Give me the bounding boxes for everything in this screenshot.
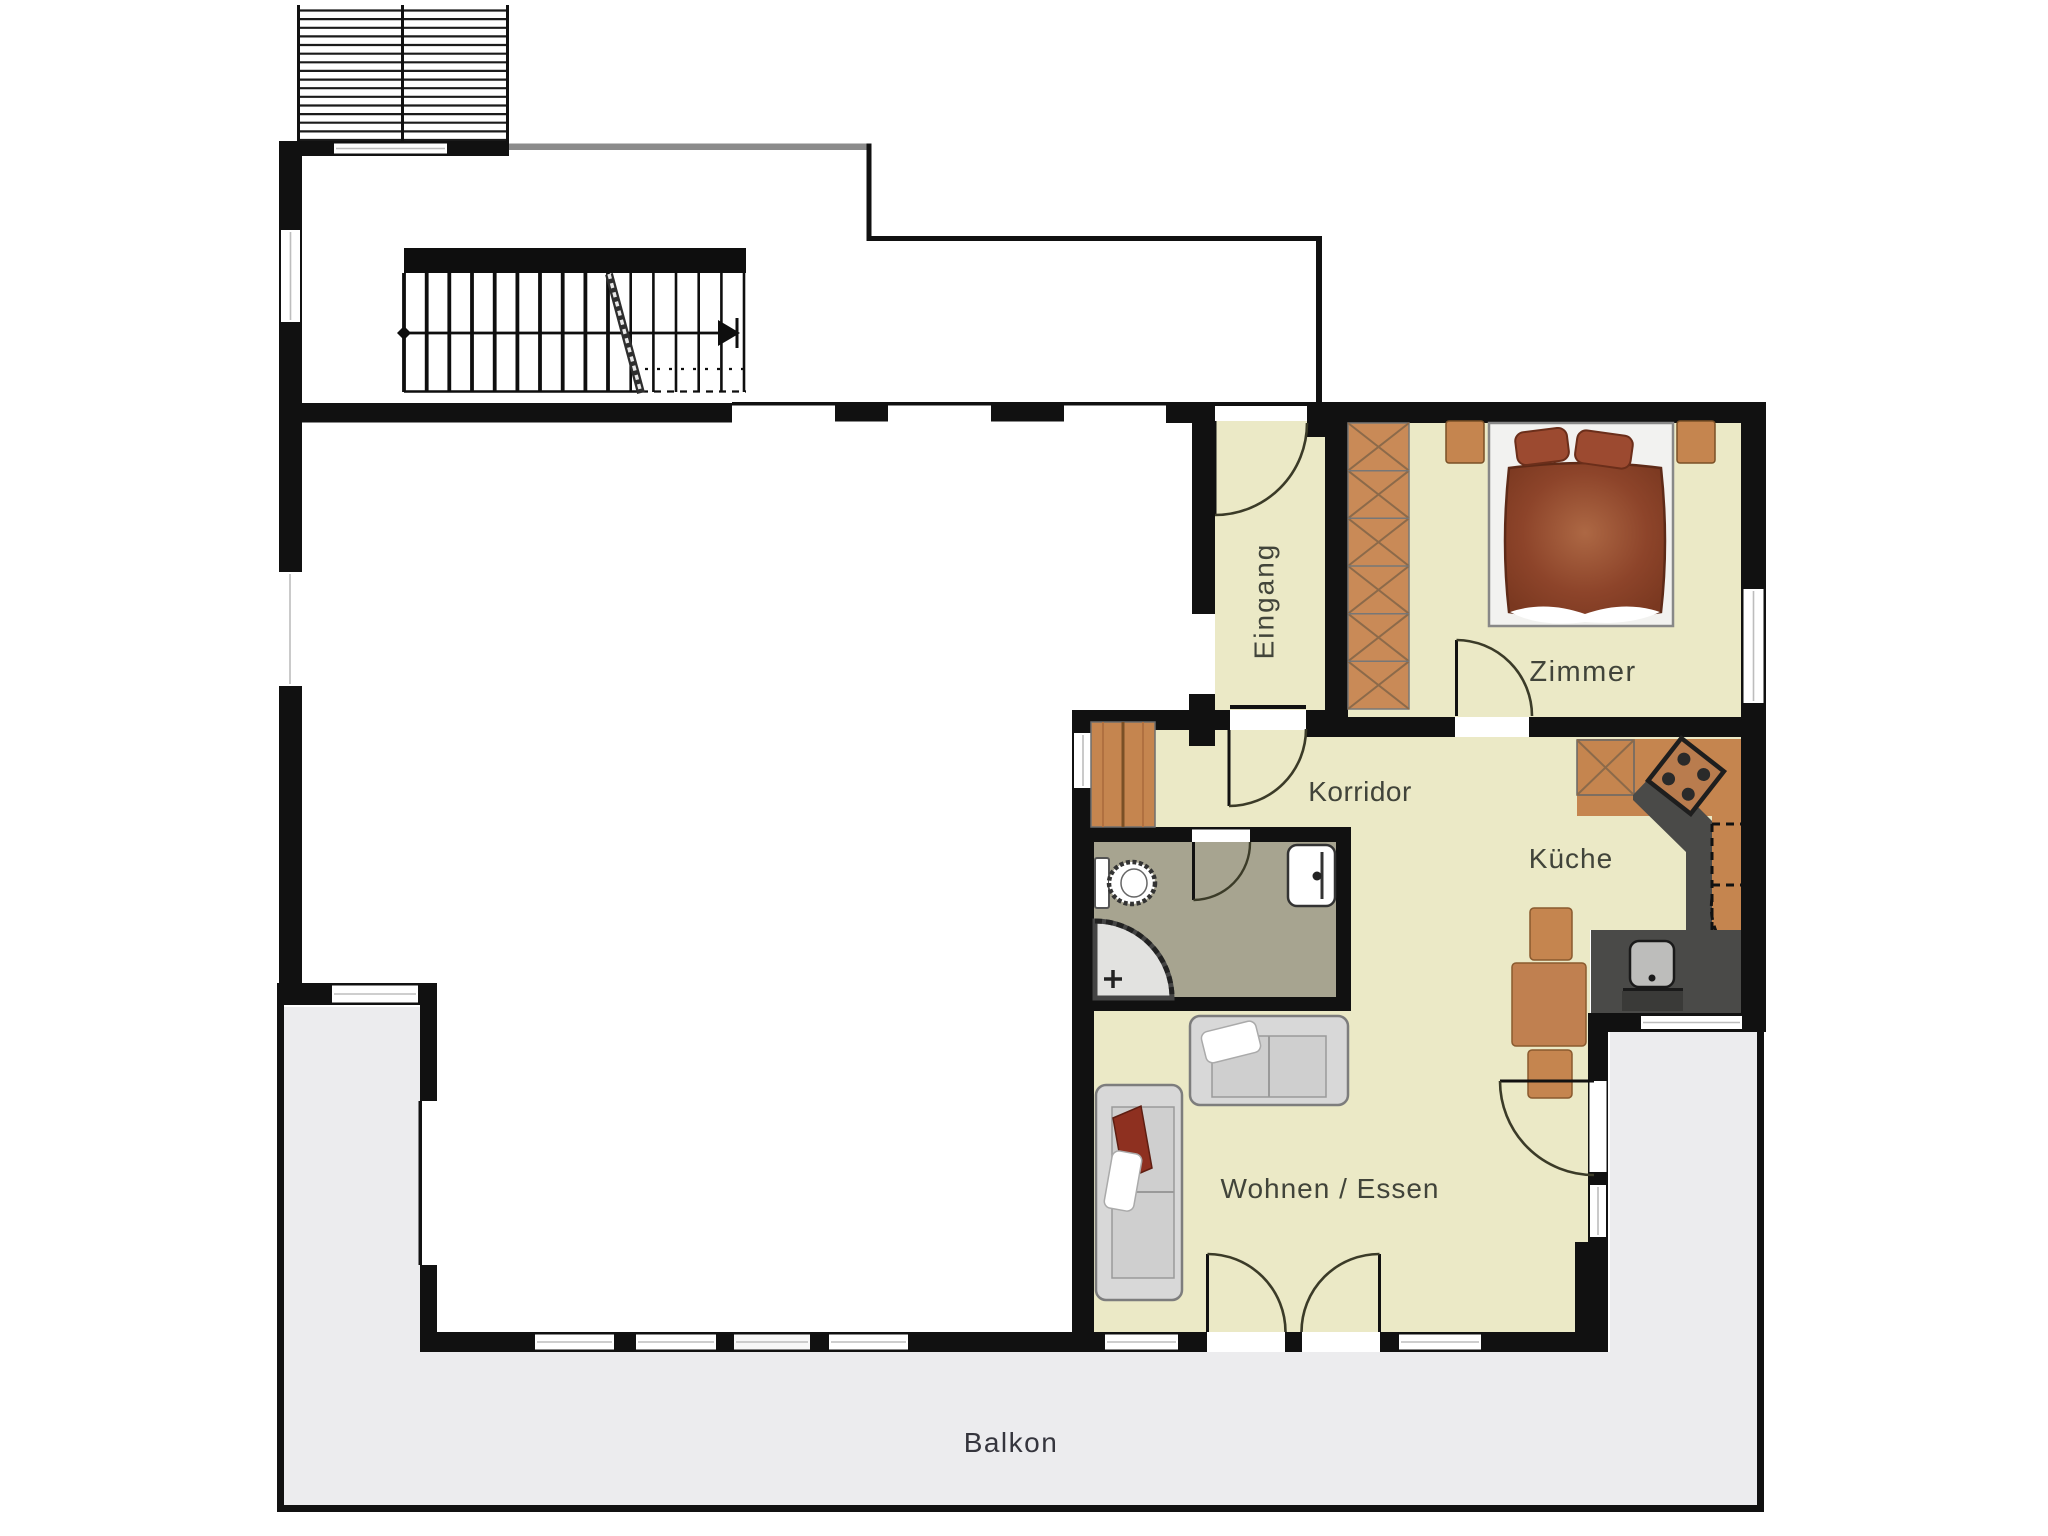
svg-text:Eingang: Eingang <box>1248 543 1279 660</box>
svg-text:Zimmer: Zimmer <box>1529 656 1636 688</box>
svg-text:Korridor: Korridor <box>1308 776 1412 807</box>
svg-text:Balkon: Balkon <box>964 1427 1059 1458</box>
svg-text:Wohnen / Essen: Wohnen / Essen <box>1221 1173 1440 1204</box>
svg-text:Küche: Küche <box>1529 843 1613 874</box>
